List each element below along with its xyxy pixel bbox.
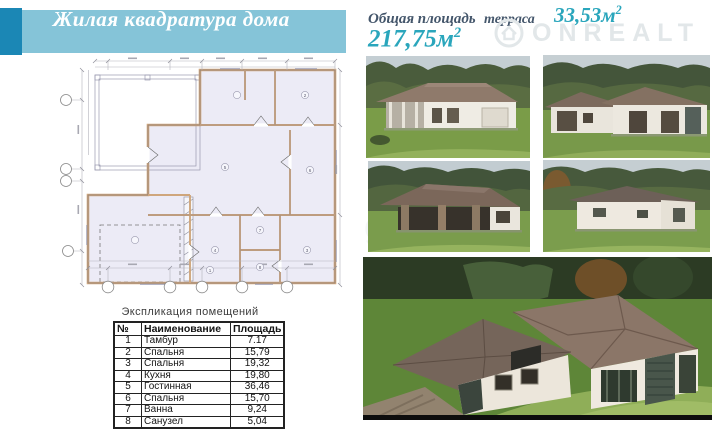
watermark-brand-text: ONREALT <box>532 19 700 48</box>
room-name: Гостинная <box>142 382 231 394</box>
table-header-row: № Наименование Площадь <box>114 322 284 336</box>
table-row: 5Гостинная36,46 <box>114 382 284 394</box>
room-tag: 8 <box>259 265 262 270</box>
col-header-area: Площадь <box>231 322 285 336</box>
room-tag: 7 <box>259 228 262 233</box>
house-logo-icon <box>494 18 524 48</box>
room-tag: 4 <box>214 248 217 253</box>
floor-plan-drawing: 1 2 3 4 5 6 7 8 <box>40 55 345 305</box>
room-name: Спальня <box>142 347 231 359</box>
watermark-brand: ONREALT <box>494 18 700 48</box>
table-row: 4Кухня19,80 <box>114 370 284 382</box>
floor-plan: 1 2 3 4 5 6 7 8 <box>40 55 345 305</box>
room-tag: 5 <box>224 165 227 170</box>
room-tag: 2 <box>304 93 307 98</box>
render-photo-4 <box>543 160 710 252</box>
row-number: 4 <box>114 370 142 382</box>
room-area: 9,24 <box>231 405 285 417</box>
terrace-area-sup: 2 <box>616 3 622 17</box>
table-row: 1Тамбур7.17 <box>114 336 284 348</box>
room-name: Спальня <box>142 359 231 371</box>
rooms-table: № Наименование Площадь 1Тамбур7.172Спаль… <box>113 321 285 429</box>
room-area: 5,04 <box>231 416 285 428</box>
banner-accent-square <box>0 8 22 55</box>
table-row: 2Спальня15,79 <box>114 347 284 359</box>
table-title: Экспликация помещений <box>110 306 270 318</box>
render-photo-1 <box>366 56 530 158</box>
total-area-number: 217,75м <box>368 25 454 52</box>
rooms-table-body: 1Тамбур7.172Спальня15,793Спальня19,324Ку… <box>114 336 284 429</box>
room-name: Ванна <box>142 405 231 417</box>
row-number: 6 <box>114 393 142 405</box>
render-photo-main <box>363 257 712 420</box>
col-header-number: № <box>114 322 142 336</box>
table-row: 6Спальня15,70 <box>114 393 284 405</box>
row-number: 1 <box>114 336 142 348</box>
row-number: 2 <box>114 347 142 359</box>
room-area: 7.17 <box>231 336 285 348</box>
col-header-name: Наименование <box>142 322 231 336</box>
room-name: Санузел <box>142 416 231 428</box>
row-number: 7 <box>114 405 142 417</box>
render-photo-3 <box>368 161 530 252</box>
room-area: 15,70 <box>231 393 285 405</box>
room-tag: 3 <box>306 248 309 253</box>
room-name: Спальня <box>142 393 231 405</box>
table-row: 8Санузел5,04 <box>114 416 284 428</box>
room-area: 19,32 <box>231 359 285 371</box>
room-area: 19,80 <box>231 370 285 382</box>
room-name: Кухня <box>142 370 231 382</box>
row-number: 3 <box>114 359 142 371</box>
room-tag: 6 <box>309 168 312 173</box>
room-tag: 1 <box>209 268 212 273</box>
room-name: Тамбур <box>142 336 231 348</box>
row-number: 5 <box>114 382 142 394</box>
row-number: 8 <box>114 416 142 428</box>
total-area-value: 217,75м2 <box>368 25 461 53</box>
room-area: 15,79 <box>231 347 285 359</box>
table-row: 7Ванна9,24 <box>114 405 284 417</box>
page-title: Жилая квадратура дома <box>53 7 290 32</box>
total-area-sup: 2 <box>454 25 461 41</box>
table-row: 3Спальня19,32 <box>114 359 284 371</box>
render-photo-2 <box>543 55 710 158</box>
room-area: 36,46 <box>231 382 285 394</box>
